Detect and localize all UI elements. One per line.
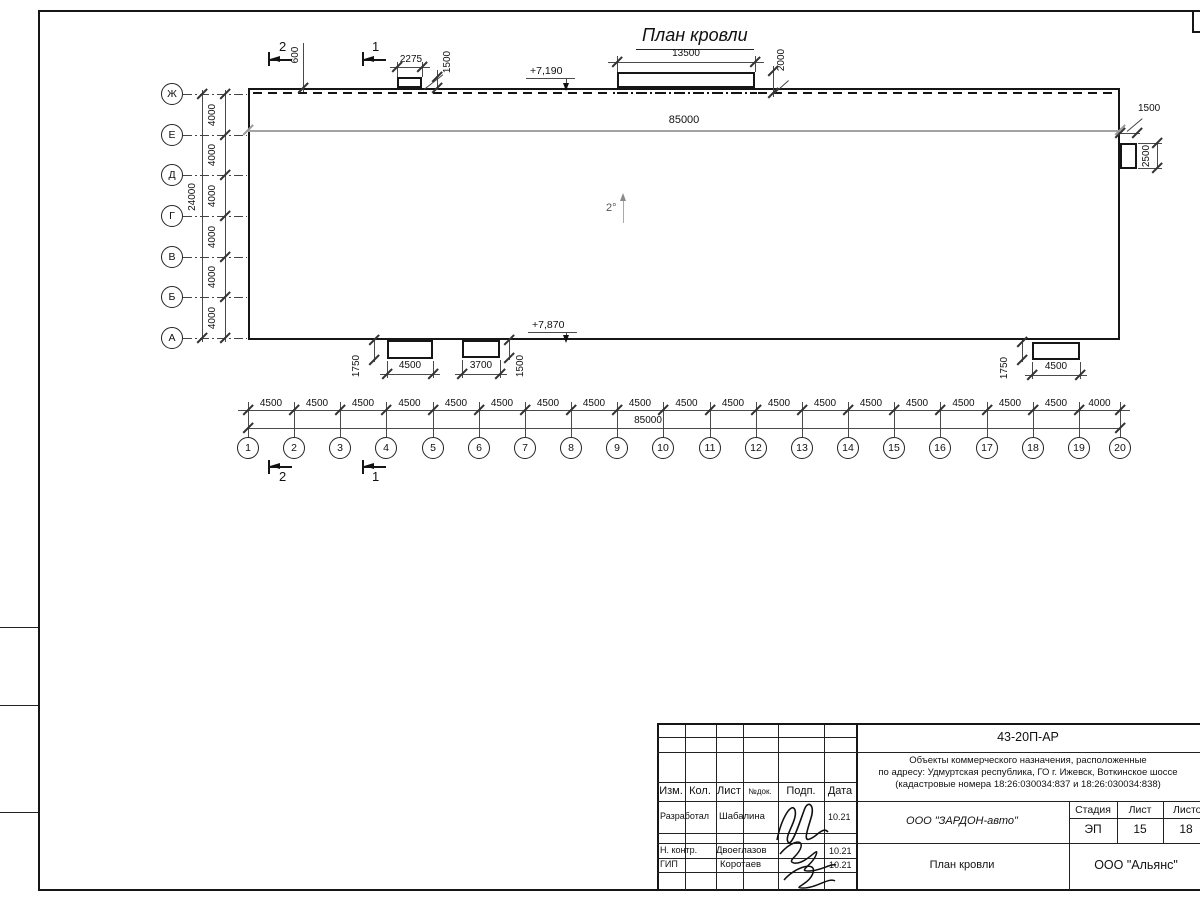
dim-85000-bottom: 85000: [631, 416, 665, 426]
tb-stage-value: ЭП: [1084, 823, 1101, 835]
elevation-bottom-underline: [528, 332, 577, 333]
bottom-box-c: [1032, 342, 1080, 360]
frame-margin-mark: [0, 627, 38, 628]
ext-line: [387, 361, 388, 378]
frame-left: [38, 10, 40, 890]
row-grid-line: [183, 257, 247, 258]
column-grid-bubble: 19: [1068, 437, 1090, 459]
canopy-big: [617, 72, 755, 88]
dim-1750-a: 1750: [352, 355, 362, 377]
dim-line-85000-bottom: [248, 428, 1120, 429]
column-bay-dimension: 4500: [537, 399, 559, 409]
elevation-top-arrow: [563, 83, 569, 91]
row-bay-dimension: 4000: [208, 266, 218, 288]
ext-line: [500, 360, 501, 378]
tb-org: ООО "ЗАРДОН-авто": [906, 816, 1018, 827]
elevation-top-underline: [526, 78, 575, 79]
tb-col-ndok: №док.: [748, 788, 771, 796]
parapet-dashed-line: [253, 92, 615, 94]
column-bay-dimension: 4500: [675, 399, 697, 409]
tb-col-data: Дата: [828, 786, 852, 797]
tb-col-izm: Изм.: [659, 786, 683, 797]
row-grid-line: [183, 175, 247, 176]
column-bay-dimension: 4000: [1088, 399, 1110, 409]
tb-line: [657, 801, 1200, 802]
bottom-box-b: [462, 340, 500, 358]
canopy-centerline: [617, 92, 757, 94]
tb-role-1: Разработал: [660, 812, 709, 821]
section-1-top-label: 1: [372, 40, 379, 53]
column-bay-dimension: 4500: [860, 399, 882, 409]
slope-arrow: [623, 199, 624, 223]
column-bay-dimension: 4500: [906, 399, 928, 409]
canopy-small: [397, 77, 422, 88]
tb-line: [716, 723, 717, 890]
frame-margin-mark: [0, 705, 38, 706]
tb-stage-label: Стадия: [1075, 805, 1111, 816]
tb-line: [856, 723, 858, 890]
row-bay-dimension: 4000: [208, 225, 218, 247]
section-2-top-label: 2: [279, 40, 286, 53]
column-grid-bubble: 17: [976, 437, 998, 459]
row-grid-bubble: Б: [161, 286, 183, 308]
row-grid-line: [183, 297, 247, 298]
row-grid-line: [183, 94, 247, 95]
ext-line: [1032, 362, 1033, 379]
tb-drawing-name: План кровли: [930, 860, 995, 871]
dim-4500-a: 4500: [399, 361, 421, 371]
section-1-top-arrow: [364, 56, 374, 62]
column-grid-bubble: 20: [1109, 437, 1131, 459]
column-grid-bubble: 13: [791, 437, 813, 459]
ext-line: [1080, 362, 1081, 379]
dim-24000: 24000: [188, 183, 198, 211]
section-2-top-arrow: [270, 56, 280, 62]
dim-2275: 2275: [400, 55, 422, 65]
dim-1750-c: 1750: [1000, 357, 1010, 379]
dim-1500-top: 1500: [443, 51, 453, 73]
tb-line: [657, 737, 856, 738]
dim-85000-top: 85000: [669, 115, 700, 126]
column-grid-bubble: 18: [1022, 437, 1044, 459]
tb-project-line3: (кадастровые номера 18:26:030034:837 и 1…: [895, 780, 1161, 790]
ext-line: [1138, 168, 1162, 169]
elevation-bottom-label: +7,870: [532, 320, 564, 331]
dim-2500: 2500: [1142, 145, 1152, 167]
elevation-bottom-arrow: [563, 335, 569, 343]
tb-name-2: Двоеглазов: [716, 846, 767, 856]
ext-line: [433, 361, 434, 378]
tb-name-3: Коротаев: [720, 860, 761, 870]
tb-line: [1069, 818, 1200, 819]
tb-project-line2: по адресу: Удмуртская республика, ГО г. …: [878, 768, 1177, 778]
column-grid-bubble: 4: [375, 437, 397, 459]
row-bay-dimension: 4000: [208, 103, 218, 125]
tb-project-line1: Объекты коммерческого назначения, распол…: [909, 756, 1146, 766]
row-grid-line: [183, 338, 247, 339]
column-grid-bubble: 9: [606, 437, 628, 459]
tb-sheet-label: Лист: [1129, 805, 1152, 816]
row-grid-bubble: Ж: [161, 83, 183, 105]
column-bay-dimension: 4500: [445, 399, 467, 409]
frame-bottom: [38, 889, 1200, 891]
tb-line: [1069, 801, 1070, 890]
column-grid-bubble: 10: [652, 437, 674, 459]
frame-top: [38, 10, 1200, 12]
dim-3700: 3700: [470, 361, 492, 371]
column-bay-dimension: 4500: [768, 399, 790, 409]
slope-arrow-head: [620, 193, 626, 201]
frame-corner-box: [1192, 31, 1200, 33]
row-grid-line: [183, 135, 247, 136]
bottom-box-a: [387, 340, 433, 359]
column-grid-bubble: 15: [883, 437, 905, 459]
tb-doc-code: 43-20П-АР: [997, 731, 1059, 744]
right-box: [1120, 143, 1137, 169]
dim-600: 600: [291, 47, 301, 64]
column-grid-bubble: 8: [560, 437, 582, 459]
row-grid-bubble: Д: [161, 164, 183, 186]
column-bay-dimension: 4500: [352, 399, 374, 409]
column-bay-dimension: 4500: [398, 399, 420, 409]
page-title: План кровли: [636, 25, 754, 50]
column-grid-bubble: 6: [468, 437, 490, 459]
column-bay-dimension: 4500: [1045, 399, 1067, 409]
signature-nkontr-gip: [776, 836, 842, 890]
column-bay-dimension: 4500: [722, 399, 744, 409]
tb-col-podp: Подп.: [786, 786, 815, 797]
column-grid-bubble: 2: [283, 437, 305, 459]
frame-corner-box: [1192, 10, 1194, 31]
column-grid-bubble: 7: [514, 437, 536, 459]
column-bay-dimension: 4500: [306, 399, 328, 409]
row-grid-bubble: А: [161, 327, 183, 349]
dim-13500: 13500: [672, 49, 700, 59]
tb-line: [657, 752, 1200, 753]
column-bay-dimension: 4500: [952, 399, 974, 409]
tb-role-2: Н. контр.: [660, 846, 697, 855]
dim-1500-b: 1500: [516, 355, 526, 377]
tb-line: [657, 723, 1200, 725]
drawing-sheet: План кровли 85000 2° 13500 2000 2275 150…: [0, 0, 1200, 900]
row-grid-bubble: Г: [161, 205, 183, 227]
column-bay-dimension: 4500: [814, 399, 836, 409]
row-bay-dimension: 4000: [208, 306, 218, 328]
dim-line-85000-top: [248, 130, 1120, 132]
dim-line-bays: [238, 410, 1130, 411]
column-bay-dimension: 4500: [260, 399, 282, 409]
row-grid-bubble: В: [161, 246, 183, 268]
tb-line: [657, 843, 1200, 844]
tb-date-1: 10.21: [828, 813, 851, 822]
section-2-bottom-label: 2: [279, 470, 286, 483]
column-grid-bubble: 12: [745, 437, 767, 459]
tb-line: [1117, 801, 1118, 843]
tb-line: [657, 782, 856, 783]
tb-sheets-label: Листов: [1173, 805, 1200, 816]
row-bay-dimension: 4000: [208, 184, 218, 206]
column-bay-dimension: 4500: [629, 399, 651, 409]
column-bay-dimension: 4500: [999, 399, 1021, 409]
tb-role-3: ГИП: [660, 860, 678, 869]
ext-line: [462, 360, 463, 378]
tb-sheet-value: 15: [1133, 823, 1146, 835]
column-grid-bubble: 5: [422, 437, 444, 459]
ext-line: [1138, 143, 1162, 144]
dim-line-13500: [608, 62, 764, 63]
section-1-bottom-label: 1: [372, 470, 379, 483]
column-bay-dimension: 4500: [583, 399, 605, 409]
tb-col-kol: Кол.: [689, 786, 711, 797]
dim-2000: 2000: [777, 49, 787, 71]
tb-name-1: Шабалина: [719, 812, 765, 822]
row-grid-bubble: Е: [161, 124, 183, 146]
tb-line: [1163, 801, 1164, 843]
dim-4500-c: 4500: [1045, 362, 1067, 372]
column-grid-bubble: 11: [699, 437, 721, 459]
tb-line: [657, 723, 659, 890]
column-grid-bubble: 3: [329, 437, 351, 459]
dim-1500-right: 1500: [1138, 104, 1160, 114]
row-grid-line: [183, 216, 247, 217]
elevation-top-label: +7,190: [530, 66, 562, 77]
tb-line: [685, 723, 686, 890]
tb-sheets-value: 18: [1179, 823, 1192, 835]
tb-company: ООО "Альянс": [1094, 859, 1178, 872]
tb-col-list: Лист: [717, 786, 741, 797]
parapet-dashed-line: [758, 92, 1115, 94]
column-grid-bubble: 16: [929, 437, 951, 459]
column-bay-dimension: 4500: [491, 399, 513, 409]
row-bay-dimension: 4000: [208, 144, 218, 166]
frame-margin-mark: [0, 812, 38, 813]
column-grid-bubble: 14: [837, 437, 859, 459]
slope-label: 2°: [606, 203, 617, 214]
column-grid-bubble: 1: [237, 437, 259, 459]
